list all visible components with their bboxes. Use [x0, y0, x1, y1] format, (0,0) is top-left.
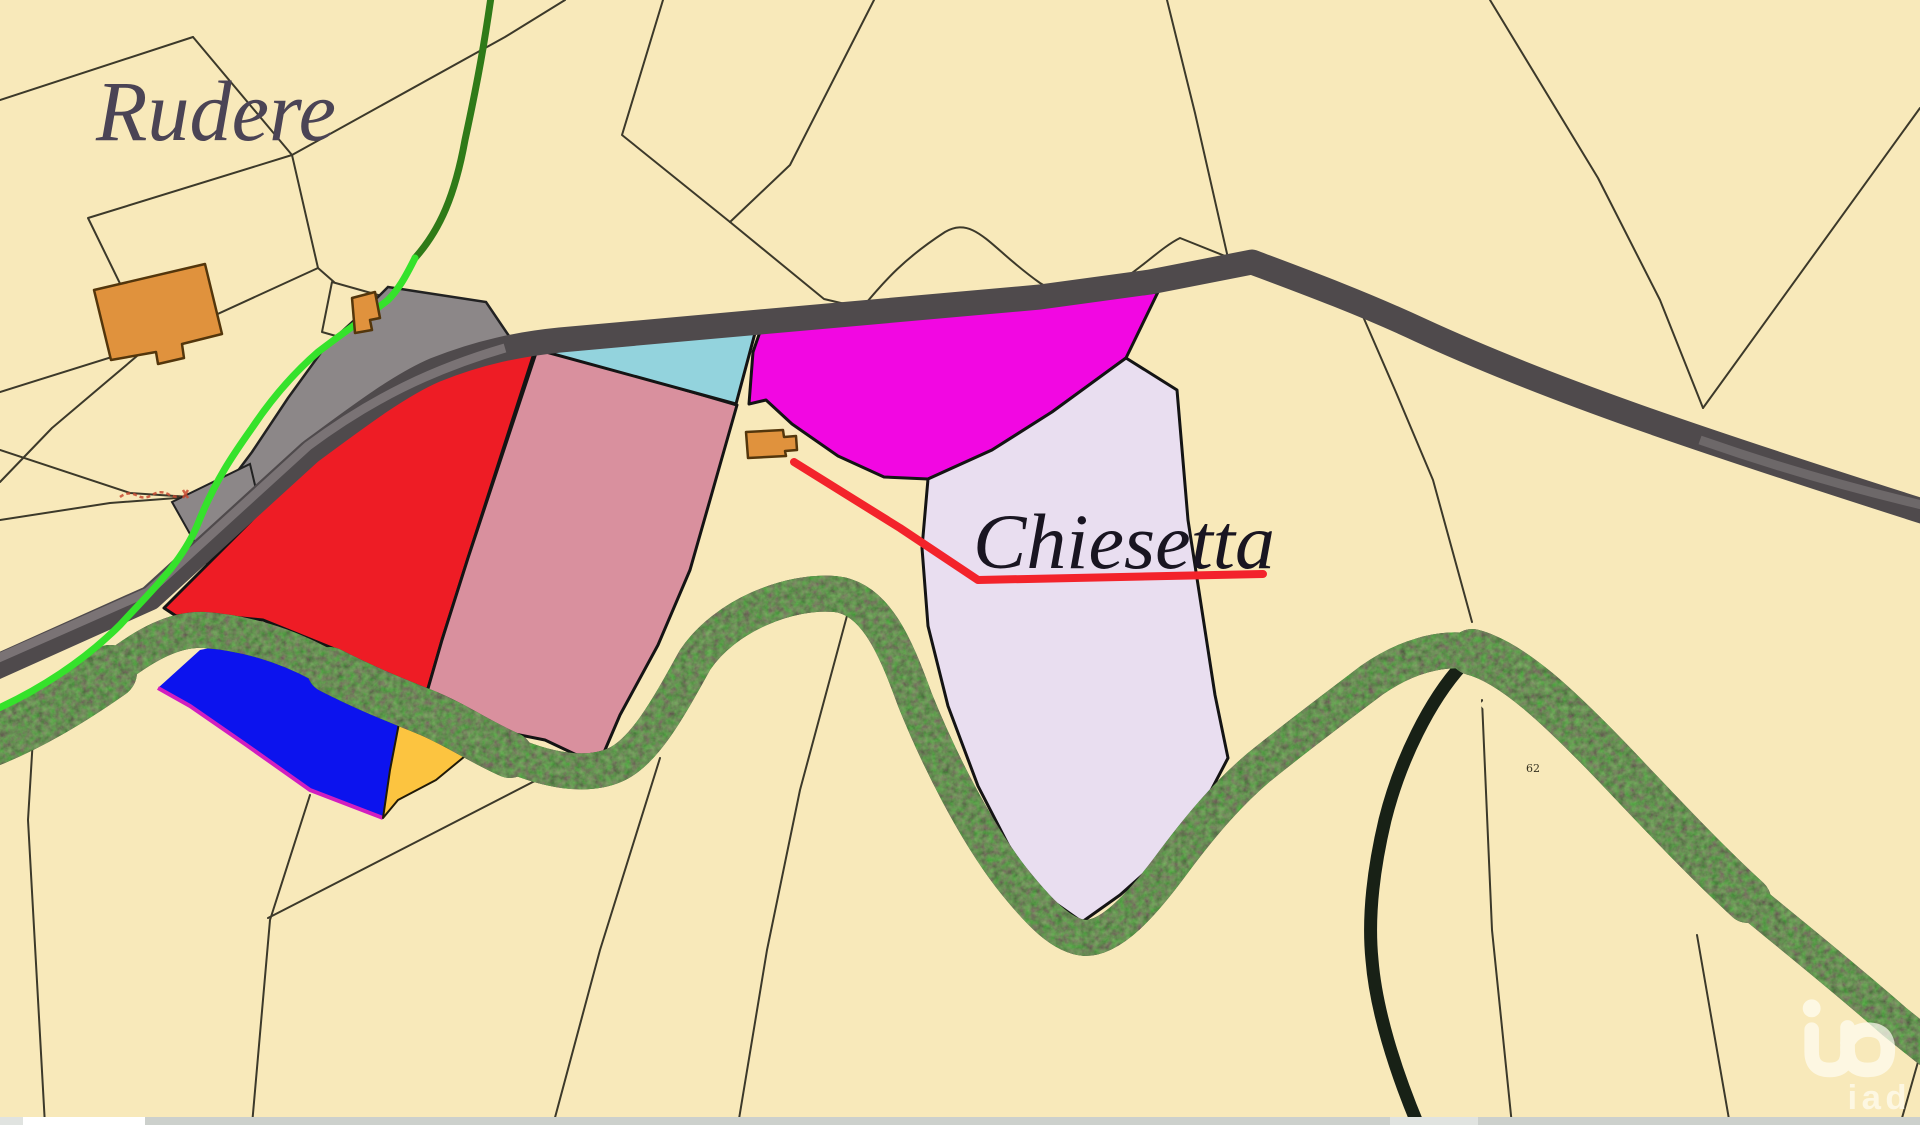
label-chiesetta: Chiesetta: [973, 498, 1275, 585]
horizontal-scrollbar[interactable]: [0, 1117, 1920, 1125]
label-rudere: Rudere: [95, 63, 336, 159]
watermark-brand-text: iad: [1848, 1079, 1912, 1117]
parcel-number-label: 62: [1526, 762, 1540, 775]
iad-logo-dot: [1803, 999, 1821, 1017]
cadastral-map: 62 Rudere Chiesetta iad: [0, 0, 1920, 1125]
scrollbar-corner: [0, 1117, 23, 1125]
scrollbar-thumb[interactable]: [23, 1117, 145, 1125]
scrollbar-track[interactable]: [0, 1117, 1920, 1125]
scrollbar-segment: [1390, 1117, 1478, 1125]
map-viewport: 62 Rudere Chiesetta iad: [0, 0, 1920, 1125]
